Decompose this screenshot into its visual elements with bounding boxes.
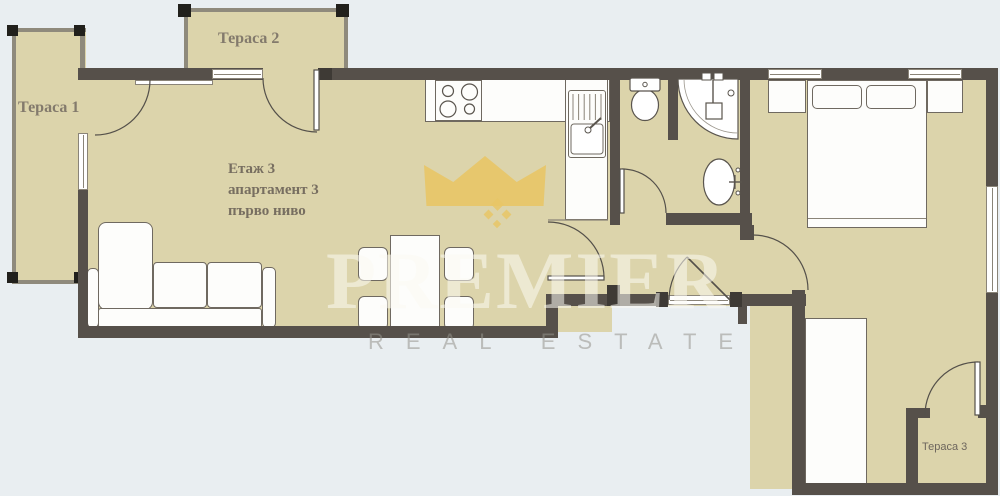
door-arc-terrace-2: [263, 78, 317, 132]
terrace-2-label: Тераса 2: [218, 30, 279, 48]
door-leaf-bathroom: [620, 169, 624, 213]
stove-burners: [440, 84, 478, 117]
watermark-brand: PREMIER: [326, 234, 727, 328]
watermark-tagline: REAL ESTATE: [368, 329, 755, 355]
door-arc-bedroom: [753, 235, 808, 290]
unit-info-floor: Етаж 3: [228, 159, 319, 180]
kitchen-sink-drainboard: [573, 94, 601, 120]
unit-info-level: първо ниво: [228, 201, 319, 222]
shower: [678, 73, 738, 139]
terrace-3-label: Тераса 3: [922, 441, 967, 453]
door-leaf-terrace-3: [975, 362, 980, 415]
washbasin: [704, 159, 743, 205]
door-arc-bathroom: [622, 169, 666, 213]
door-arc-terrace-1: [95, 80, 150, 135]
door-arc-terrace-3: [925, 362, 978, 415]
floor-plan: Тераса 1 Тераса 2 Тераса 3 Етаж 3 апарта…: [0, 0, 1000, 496]
unit-info-label: Етаж 3 апартамент 3 първо ниво: [228, 159, 319, 222]
toilet: [630, 78, 660, 121]
terrace-1-label: Тераса 1: [18, 99, 79, 117]
door-leaf-terrace-2: [314, 70, 319, 130]
unit-info-apartment: апартамент 3: [228, 180, 319, 201]
